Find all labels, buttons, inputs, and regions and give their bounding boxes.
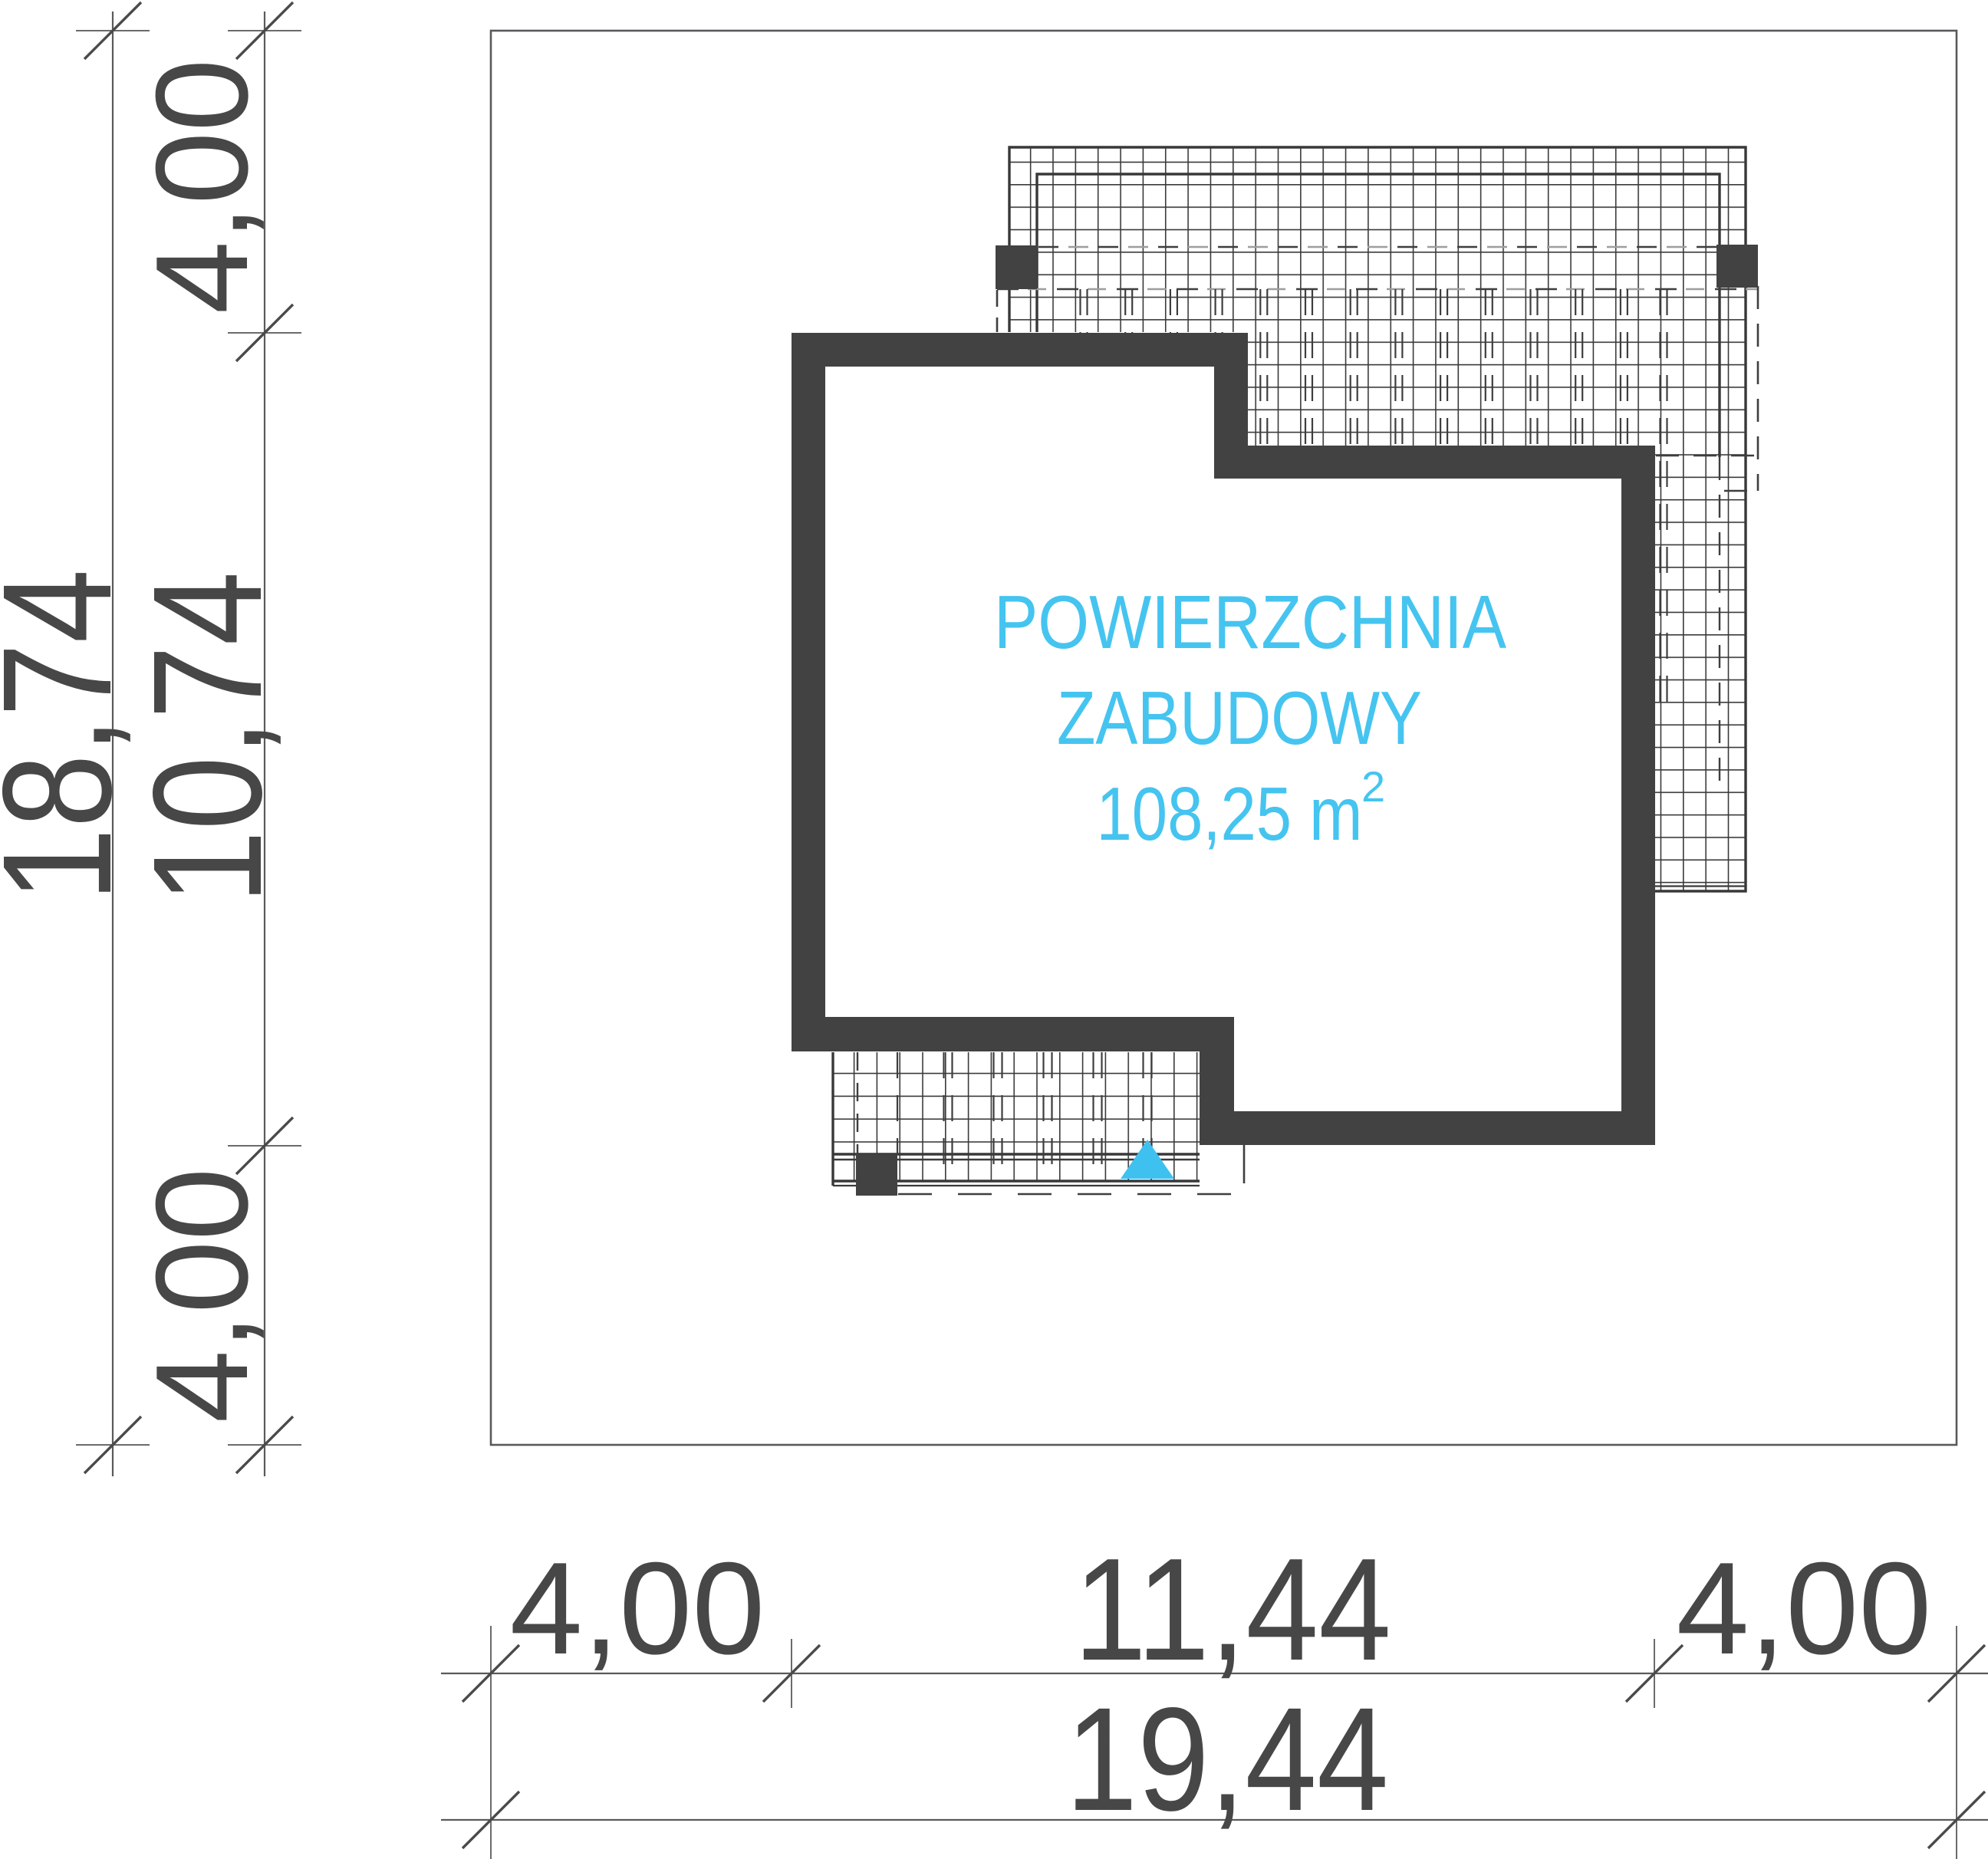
svg-text:2: 2 bbox=[1361, 762, 1385, 811]
svg-text:10,74: 10,74 bbox=[120, 571, 294, 904]
svg-text:108,25 m: 108,25 m bbox=[1097, 772, 1363, 856]
svg-text:ZABUDOWY: ZABUDOWY bbox=[1057, 676, 1422, 760]
svg-text:4,00: 4,00 bbox=[129, 59, 275, 314]
svg-text:4,00: 4,00 bbox=[1677, 1535, 1932, 1682]
svg-text:POWIERZCHNIA: POWIERZCHNIA bbox=[994, 580, 1507, 664]
svg-text:11,44: 11,44 bbox=[1074, 1528, 1391, 1691]
svg-text:19,44: 19,44 bbox=[1066, 1676, 1389, 1841]
svg-text:4,00: 4,00 bbox=[510, 1535, 765, 1682]
svg-text:4,00: 4,00 bbox=[129, 1168, 275, 1423]
